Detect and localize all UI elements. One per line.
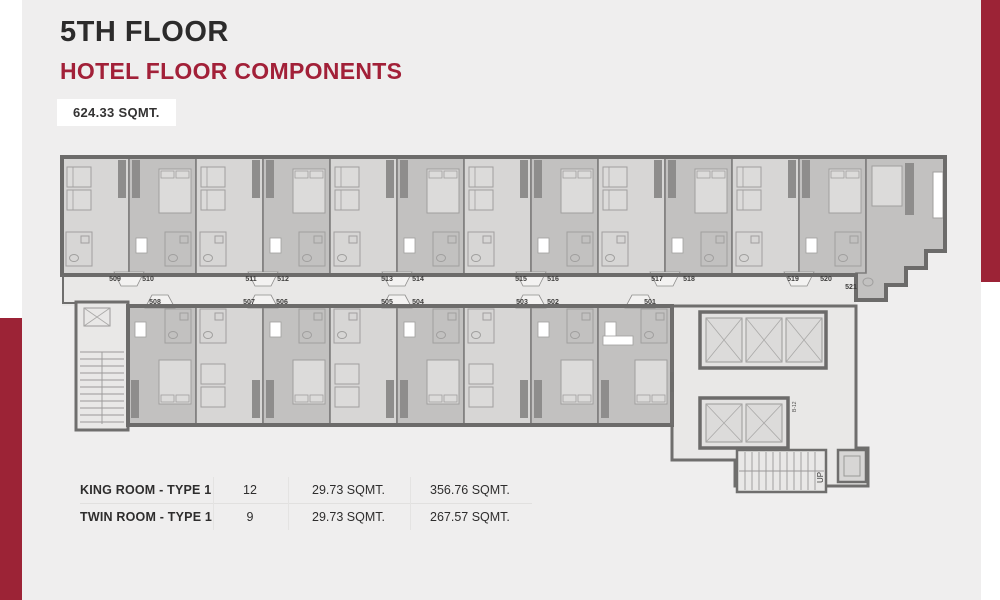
svg-text:507: 507 [243,299,255,306]
room-503 [464,306,531,425]
svg-text:504: 504 [412,299,424,306]
stairs-up-label: UP [816,472,825,483]
svg-text:520: 520 [820,276,832,283]
room-510 [129,157,196,275]
svg-text:502: 502 [547,299,559,306]
room-count: 9 [230,510,270,524]
svg-text:509: 509 [109,276,121,283]
svg-text:516: 516 [547,276,559,283]
svg-text:512: 512 [277,276,289,283]
table-row-king: KING ROOM - TYPE 1 12 29.73 SQMT. 356.76… [80,477,540,503]
room-511 [196,157,263,275]
svg-text:517: 517 [651,276,663,283]
table-row-twin: TWIN ROOM - TYPE 1 9 29.73 SQMT. 267.57 … [80,504,540,530]
room-501 [598,306,672,425]
room-519 [732,157,799,275]
service-shaft [838,450,866,482]
room-515 [464,157,531,275]
room-502 [531,306,598,425]
corridor [62,273,856,306]
room-total-area: 267.57 SQMT. [430,510,510,524]
stairwell-right: UP [737,450,826,492]
elevator-bank-2 [700,398,788,448]
svg-text:501: 501 [644,299,656,306]
room-count: 12 [230,483,270,497]
svg-text:510: 510 [142,276,154,283]
room-513 [330,157,397,275]
elevator-bank-1 [700,312,826,368]
svg-text:515: 515 [515,276,527,283]
room-507 [196,306,263,425]
room-520 [799,157,866,275]
svg-text:508: 508 [149,299,161,306]
svg-text:514: 514 [412,276,424,283]
room-512 [263,157,330,275]
room-504 [397,306,464,425]
room-517 [598,157,665,275]
room-514 [397,157,464,275]
room-505 [330,306,397,425]
room-unit-area: 29.73 SQMT. [312,483,385,497]
svg-text:505: 505 [381,299,393,306]
svg-text:521: 521 [845,284,857,291]
room-summary-table: KING ROOM - TYPE 1 12 29.73 SQMT. 356.76… [80,477,540,530]
room-516 [531,157,598,275]
svg-text:503: 503 [516,299,528,306]
svg-text:513: 513 [381,276,393,283]
room-506 [263,306,330,425]
room-518 [665,157,732,275]
svg-text:506: 506 [276,299,288,306]
room-type-name: TWIN ROOM - TYPE 1 [80,510,212,524]
room-type-name: KING ROOM - TYPE 1 [80,483,211,497]
svg-text:518: 518 [683,276,695,283]
room-508 [128,306,196,425]
svg-text:519: 519 [787,276,799,283]
room-509 [62,157,129,275]
room-521 [856,157,945,300]
shaft-label: B-12 [792,401,798,412]
svg-text:511: 511 [245,276,256,283]
room-total-area: 356.76 SQMT. [430,483,510,497]
room-unit-area: 29.73 SQMT. [312,510,385,524]
